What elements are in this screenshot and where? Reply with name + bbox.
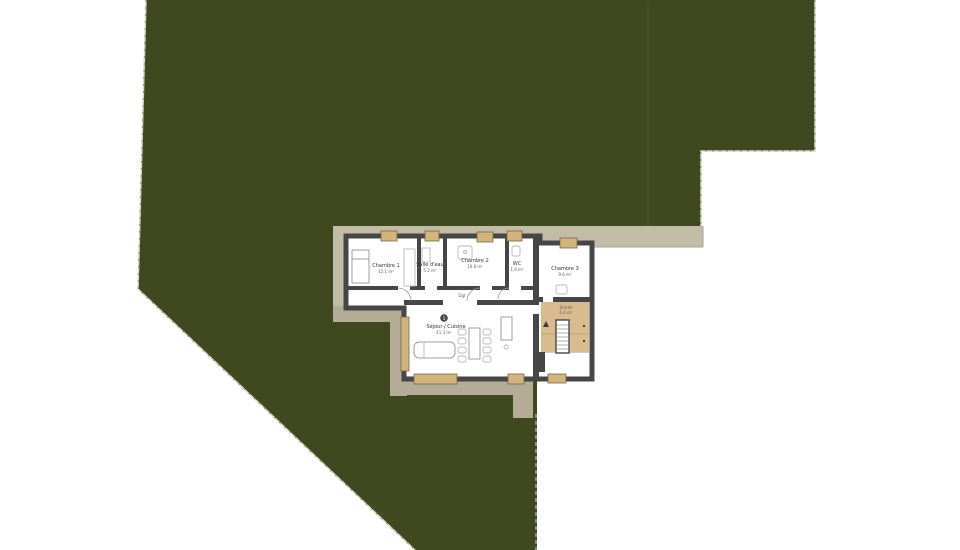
window — [425, 231, 439, 241]
window — [381, 231, 397, 241]
door-hinge-dot — [583, 325, 585, 327]
wall-segment — [533, 314, 539, 379]
wall-segment — [533, 236, 539, 302]
room-area-chambre-1: 12.1 m² — [378, 269, 394, 274]
window-south — [508, 374, 524, 384]
wall-segment — [505, 236, 509, 288]
wall-segment — [477, 300, 539, 305]
window — [560, 238, 577, 248]
wall-segment — [410, 286, 425, 290]
room-label-degagement: Dgt — [458, 293, 466, 298]
room-area-salle-eau: 5.2 m² — [423, 268, 437, 273]
wall-segment — [539, 352, 545, 372]
room-label-sejour: Séjour / Cuisine — [426, 323, 465, 330]
window-west — [401, 317, 409, 371]
entry-door-south — [548, 374, 566, 383]
room-area-sejour: 41.3 m² — [436, 330, 452, 335]
door-gap — [543, 297, 553, 302]
wall-segment — [521, 286, 539, 290]
wall-segment — [346, 286, 398, 290]
plan-number: 1 — [443, 316, 446, 322]
site-plan-canvas: Chambre 1 12.1 m² Salle d'eau 5.2 m² Cha… — [0, 0, 960, 550]
room-area-entree: 6.4 m² — [559, 310, 573, 315]
room-area-wc: 1.9 m² — [510, 267, 524, 272]
wall-segment — [404, 300, 443, 305]
door-hinge-dot — [583, 340, 585, 342]
sliding-door-south — [414, 374, 457, 384]
site-plan-drawing: Chambre 1 12.1 m² Salle d'eau 5.2 m² Cha… — [0, 0, 960, 550]
room-area-chambre-3: 9.6 m² — [558, 272, 572, 277]
window — [507, 231, 522, 241]
room-area-chambre-2: 10.8 m² — [467, 264, 483, 269]
window — [477, 232, 493, 242]
